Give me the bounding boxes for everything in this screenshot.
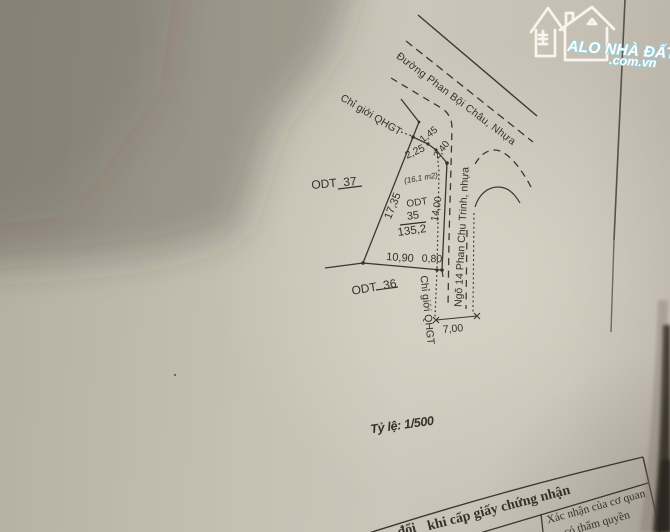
svg-text:.com.vn: .com.vn <box>609 53 657 70</box>
